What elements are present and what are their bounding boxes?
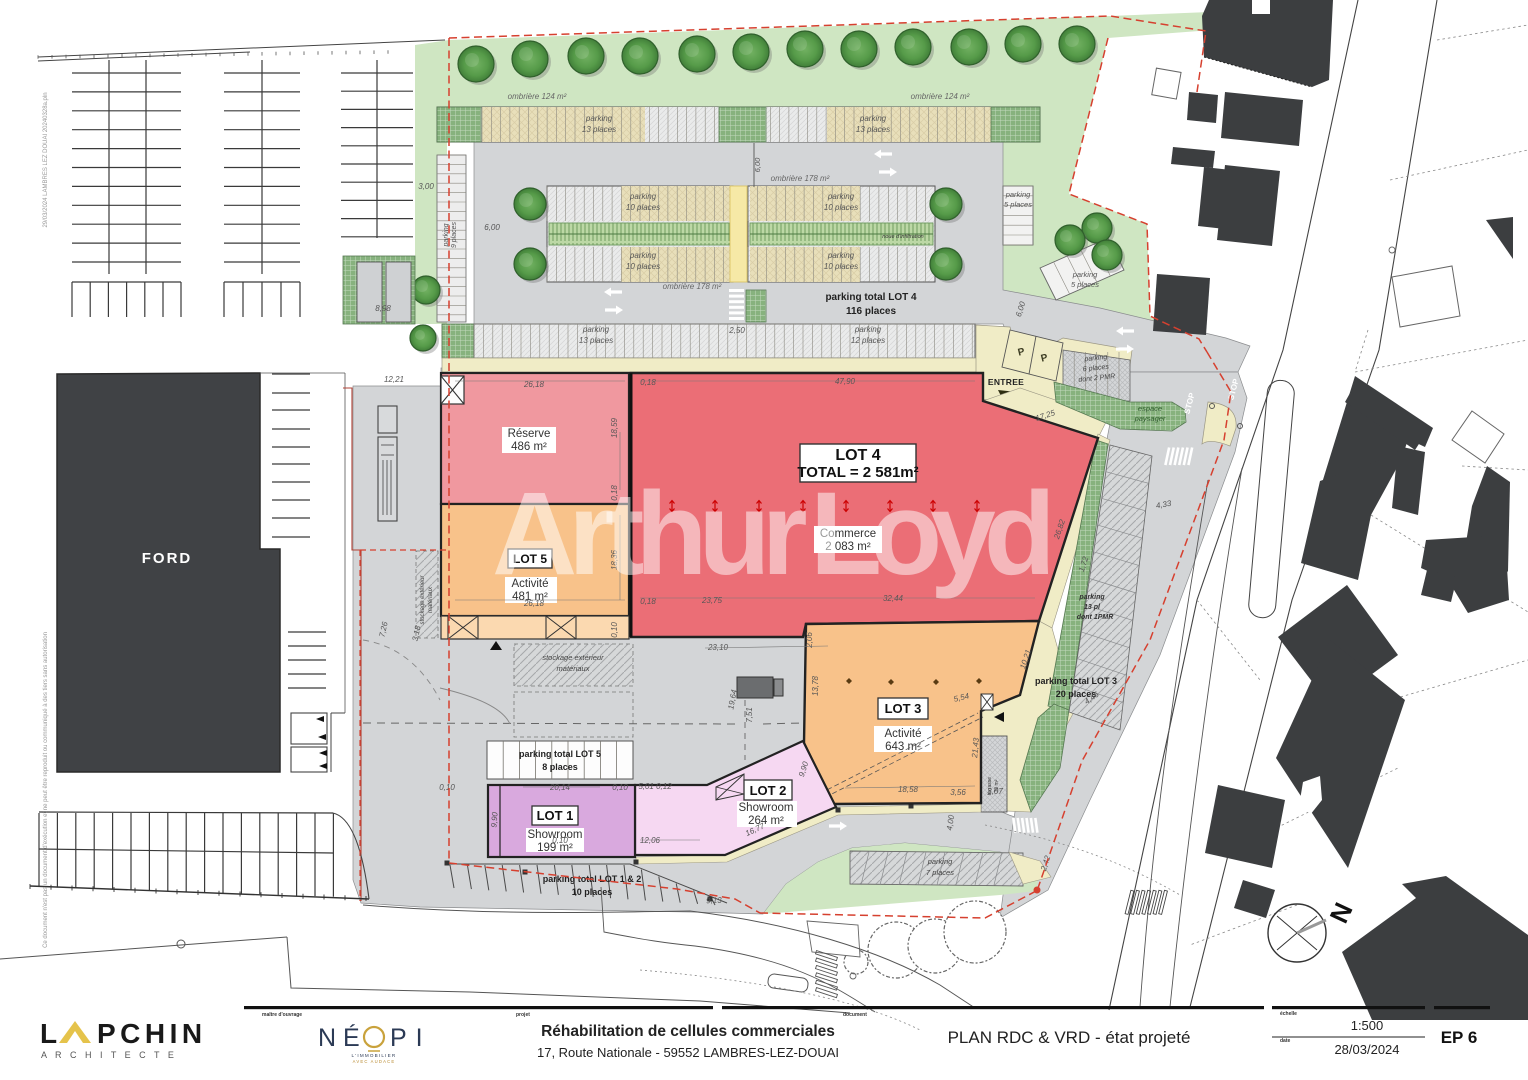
svg-text:PI: PI — [390, 1024, 432, 1052]
svg-text:ombrière 178 m²: ombrière 178 m² — [771, 174, 830, 183]
svg-text:ombrière 124 m²: ombrière 124 m² — [508, 92, 567, 101]
svg-text:EP 6: EP 6 — [1441, 1028, 1478, 1047]
svg-text:dont 1PMR: dont 1PMR — [1077, 614, 1114, 621]
svg-text:FORD: FORD — [142, 550, 193, 567]
svg-text:parking: parking — [927, 857, 953, 866]
svg-text:5,01 0,12: 5,01 0,12 — [638, 782, 672, 791]
svg-text:Activité: Activité — [884, 728, 921, 740]
svg-text:parking total LOT 3: parking total LOT 3 — [1035, 676, 1117, 686]
svg-text:26,18: 26,18 — [523, 599, 545, 608]
svg-text:parking: parking — [629, 192, 657, 201]
svg-text:116 places: 116 places — [846, 306, 896, 317]
svg-text:date: date — [1280, 1038, 1291, 1044]
svg-text:document: document — [843, 1012, 867, 1018]
svg-text:LOT 4: LOT 4 — [835, 447, 880, 464]
svg-text:parking: parking — [1072, 270, 1098, 279]
svg-text:10 places: 10 places — [626, 262, 660, 271]
svg-text:noue d'infiltration: noue d'infiltration — [882, 234, 923, 240]
svg-text:parking: parking — [859, 114, 887, 123]
svg-text:10 places: 10 places — [572, 887, 613, 897]
svg-text:13 places: 13 places — [579, 336, 613, 345]
svg-text:486 m²: 486 m² — [511, 441, 547, 453]
svg-text:12,06: 12,06 — [640, 836, 661, 845]
svg-text:6,00: 6,00 — [484, 223, 500, 232]
svg-text:3,56: 3,56 — [950, 788, 966, 797]
svg-text:NÉ: NÉ — [318, 1023, 367, 1052]
svg-text:matériaux: matériaux — [557, 664, 590, 673]
svg-text:ENTREE: ENTREE — [988, 377, 1024, 387]
svg-text:2,50: 2,50 — [728, 326, 745, 335]
svg-text:0,10: 0,10 — [610, 622, 619, 638]
svg-text:9 places: 9 places — [451, 221, 458, 248]
svg-text:LOT 1: LOT 1 — [537, 808, 574, 823]
svg-text:21,43: 21,43 — [970, 737, 981, 759]
svg-text:parking: parking — [1078, 594, 1105, 601]
svg-text:Ce document n'est pas un docum: Ce document n'est pas un document d'exéc… — [43, 632, 49, 948]
svg-text:13,78: 13,78 — [811, 675, 820, 696]
svg-text:stockage extérieur: stockage extérieur — [542, 653, 604, 662]
svg-text:1:500: 1:500 — [1351, 1018, 1384, 1033]
svg-text:stockage extérieur: stockage extérieur — [420, 574, 426, 624]
svg-text:5 places: 5 places — [1004, 200, 1032, 209]
svg-text:0,18: 0,18 — [640, 378, 656, 387]
svg-text:A R C H I T E C T E: A R C H I T E C T E — [41, 1050, 177, 1060]
svg-text:parking total LOT 4: parking total LOT 4 — [825, 292, 917, 303]
svg-text:13 places: 13 places — [582, 125, 616, 134]
svg-text:LOT 2: LOT 2 — [750, 783, 787, 798]
svg-text:projet: projet — [516, 1012, 530, 1018]
svg-text:13 places: 13 places — [856, 125, 890, 134]
svg-text:8,98: 8,98 — [375, 304, 391, 313]
svg-text:L'IMMOBILIER: L'IMMOBILIER — [352, 1053, 397, 1058]
svg-text:12,21: 12,21 — [384, 375, 404, 384]
svg-text:643 m²: 643 m² — [885, 741, 921, 753]
svg-text:parking: parking — [854, 325, 882, 334]
svg-text:matériaux: matériaux — [428, 586, 434, 613]
svg-text:9,13: 9,13 — [706, 896, 723, 906]
svg-text:parking: parking — [585, 114, 613, 123]
svg-text:parking: parking — [582, 325, 610, 334]
svg-text:Loyd: Loyd — [810, 468, 1049, 600]
svg-text:Réserve: Réserve — [508, 428, 551, 440]
svg-text:7,51: 7,51 — [745, 707, 754, 723]
svg-text:espace: espace — [1138, 404, 1162, 413]
svg-text:échelle: échelle — [1280, 1011, 1297, 1017]
svg-text:parking: parking — [1005, 190, 1031, 199]
svg-text:18,59: 18,59 — [610, 417, 619, 438]
svg-text:9,90: 9,90 — [489, 811, 499, 828]
svg-text:parking total LOT 5: parking total LOT 5 — [519, 749, 601, 759]
svg-text:17, Route Nationale - 59552 LA: 17, Route Nationale - 59552 LAMBRES-LEZ-… — [537, 1045, 839, 1060]
svg-text:3,07: 3,07 — [987, 787, 1003, 796]
svg-text:ombrière 178 m²: ombrière 178 m² — [663, 282, 722, 291]
svg-text:7 places: 7 places — [926, 868, 954, 877]
svg-text:0,10: 0,10 — [439, 783, 455, 792]
svg-text:12 places: 12 places — [851, 336, 885, 345]
svg-text:6,00: 6,00 — [753, 157, 762, 172]
svg-text:parking: parking — [629, 251, 657, 260]
svg-text:0,10: 0,10 — [612, 783, 628, 792]
svg-text:20,14: 20,14 — [549, 783, 571, 792]
svg-text:L: L — [40, 1018, 57, 1049]
svg-text:13 pl: 13 pl — [1084, 604, 1101, 611]
svg-text:18,58: 18,58 — [898, 785, 919, 794]
svg-text:47,90: 47,90 — [835, 377, 856, 386]
svg-text:LOT 3: LOT 3 — [885, 701, 922, 716]
svg-text:10 places: 10 places — [824, 262, 858, 271]
svg-text:8 places: 8 places — [542, 762, 578, 772]
svg-text:PCHIN: PCHIN — [97, 1018, 207, 1049]
svg-text:paysager: paysager — [1134, 414, 1166, 423]
svg-text:0,10: 0,10 — [552, 836, 568, 845]
svg-text:28/03/2024: 28/03/2024 — [1334, 1042, 1399, 1057]
svg-text:29/03/2024 LAMBRES LEZ DOUAI 2: 29/03/2024 LAMBRES LEZ DOUAI 20240328a.p… — [43, 92, 49, 227]
svg-text:maître d'ouvrage: maître d'ouvrage — [262, 1012, 302, 1018]
svg-text:Réhabilitation de cellules com: Réhabilitation de cellules commerciales — [541, 1023, 835, 1040]
svg-text:Arthur: Arthur — [492, 468, 807, 600]
svg-text:3,00: 3,00 — [418, 182, 434, 191]
svg-text:10 places: 10 places — [626, 203, 660, 212]
svg-text:parking: parking — [827, 251, 855, 260]
svg-text:AVEC AUDACE: AVEC AUDACE — [353, 1059, 396, 1064]
svg-text:5 places: 5 places — [1071, 280, 1099, 289]
svg-text:Showroom: Showroom — [739, 802, 794, 814]
svg-text:ombrière 124 m²: ombrière 124 m² — [911, 92, 970, 101]
svg-text:PLAN RDC & VRD - état projeté: PLAN RDC & VRD - état projeté — [948, 1028, 1191, 1047]
svg-text:10 places: 10 places — [824, 203, 858, 212]
svg-text:26,18: 26,18 — [523, 380, 545, 389]
svg-text:parking: parking — [827, 192, 855, 201]
